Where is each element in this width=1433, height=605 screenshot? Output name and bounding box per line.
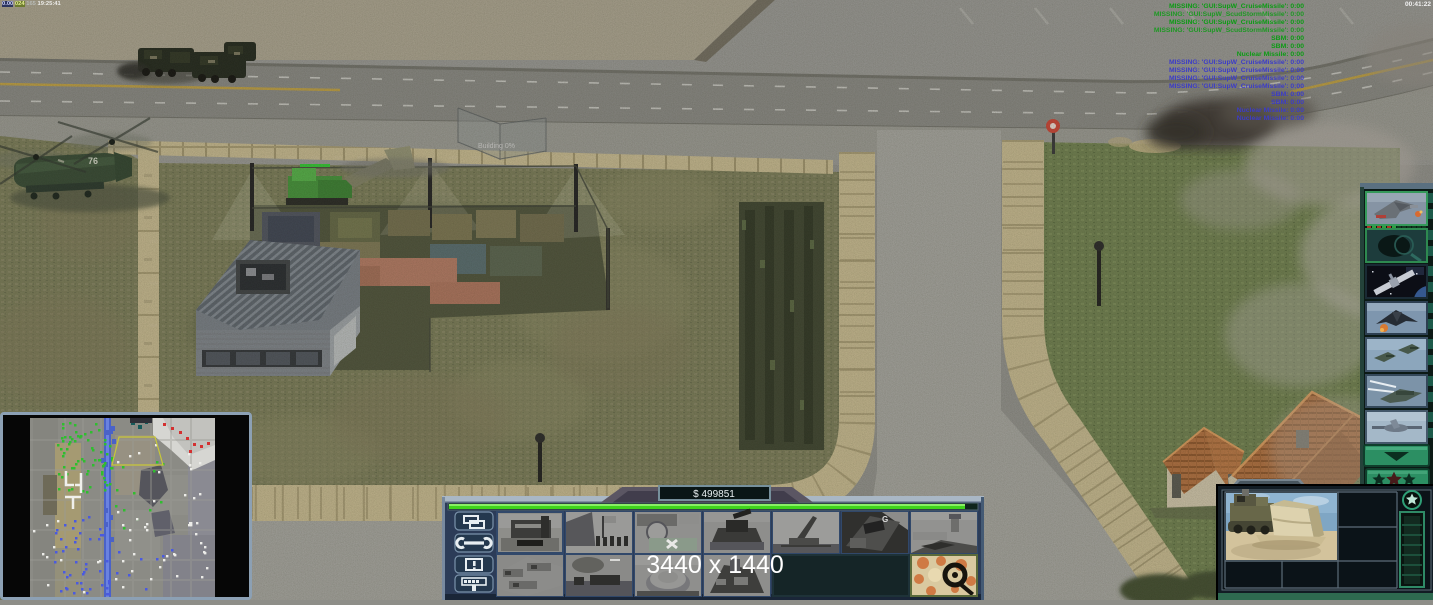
- svg-text:$ 499851: $ 499851: [693, 489, 735, 500]
- svg-text:G: G: [882, 515, 888, 524]
